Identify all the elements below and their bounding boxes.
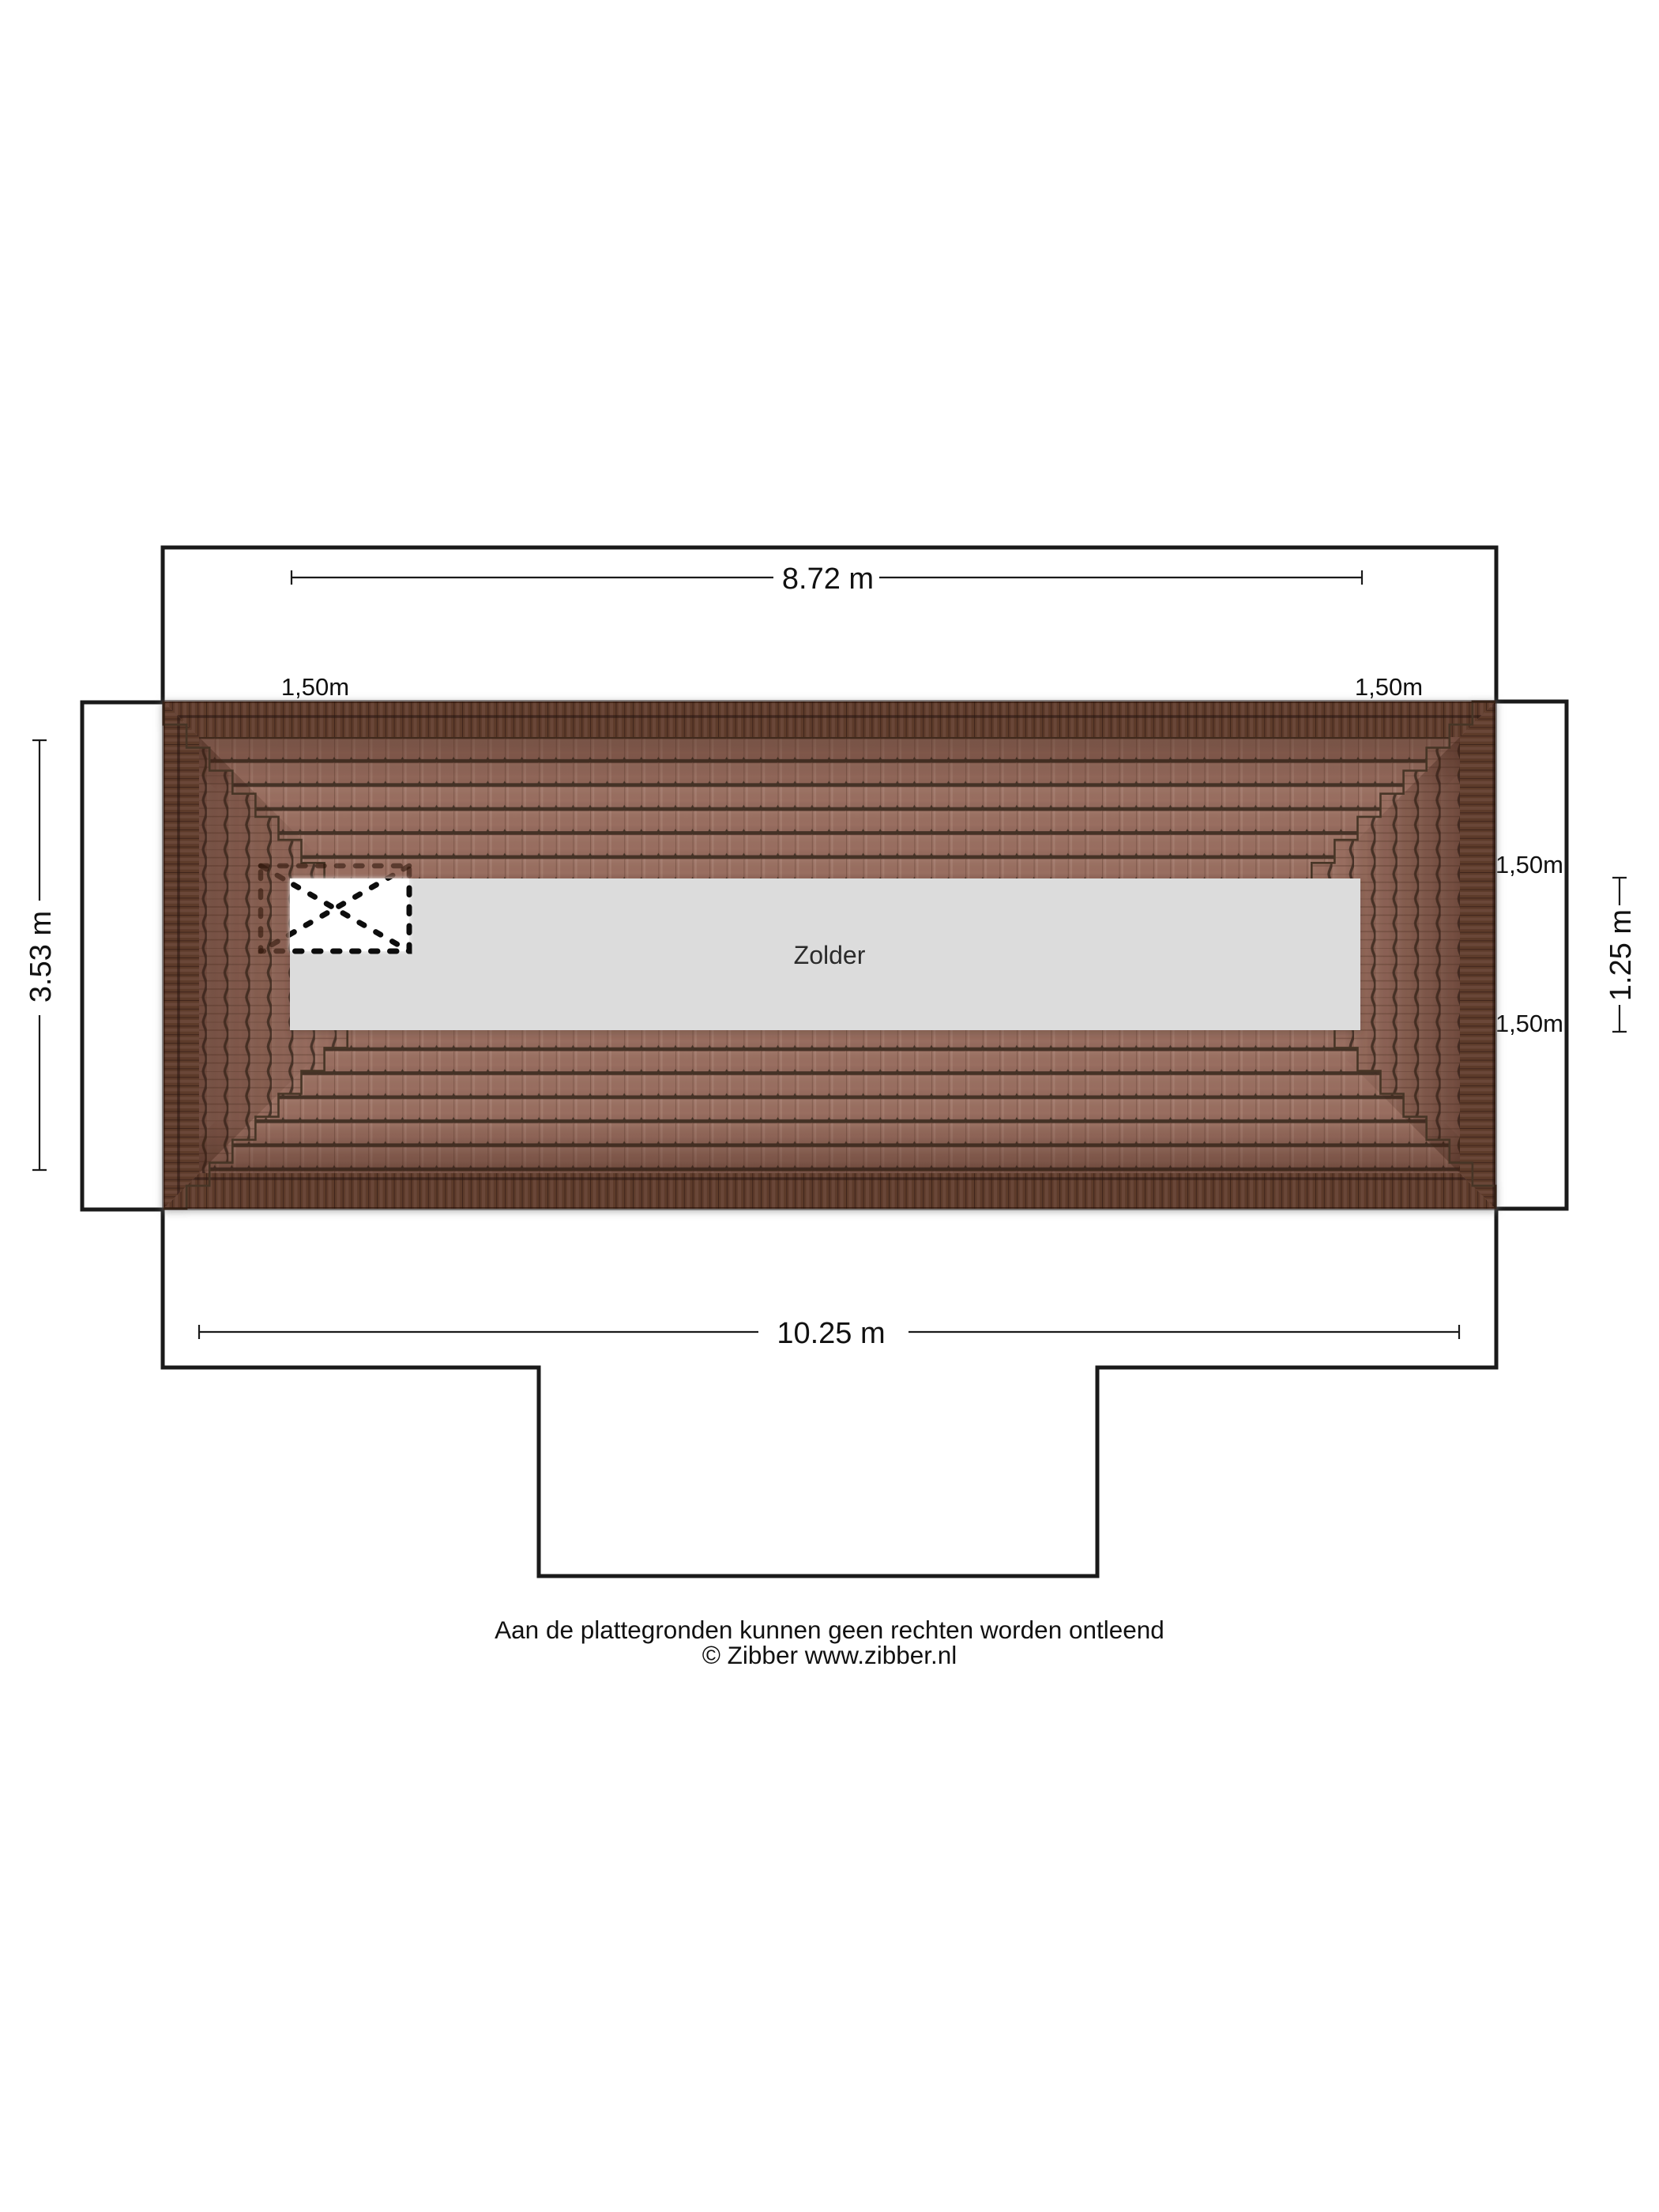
svg-text:1.25 m: 1.25 m (1604, 909, 1638, 1001)
svg-text:1,50m: 1,50m (1495, 1010, 1563, 1037)
svg-text:3.53 m: 3.53 m (24, 911, 58, 1003)
svg-text:1,50m: 1,50m (1355, 673, 1423, 701)
svg-text:8.72 m: 8.72 m (782, 562, 874, 596)
svg-text:1,50m: 1,50m (281, 673, 349, 701)
svg-text:Aan de plattegronden kunnen ge: Aan de plattegronden kunnen geen rechten… (495, 1616, 1164, 1644)
svg-text:10.25 m: 10.25 m (777, 1317, 885, 1350)
svg-text:© Zibber www.zibber.nl: © Zibber www.zibber.nl (702, 1641, 957, 1669)
svg-text:1,50m: 1,50m (1495, 851, 1563, 878)
svg-text:Zolder: Zolder (794, 941, 866, 969)
